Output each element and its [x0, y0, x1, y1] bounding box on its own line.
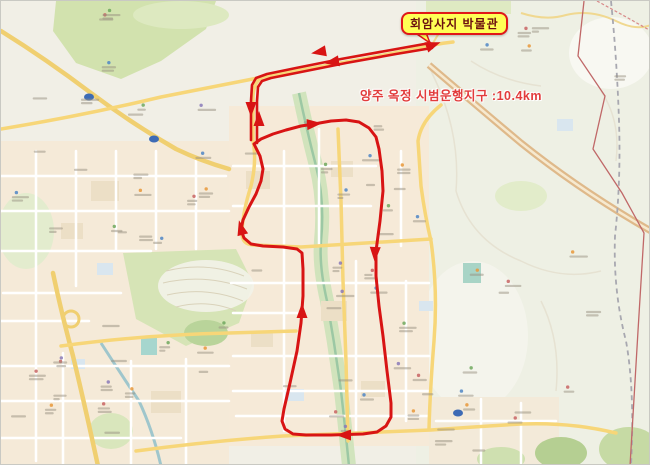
- map-canvas[interactable]: [1, 1, 650, 465]
- destination-label: 회암사지 박물관: [401, 12, 508, 35]
- route-distance-label: 양주 옥정 시범운행지구 :10.4km: [360, 85, 542, 104]
- map-viewport[interactable]: 회암사지 박물관 양주 옥정 시범운행지구 :10.4km: [0, 0, 650, 465]
- map-artwork: [1, 1, 650, 465]
